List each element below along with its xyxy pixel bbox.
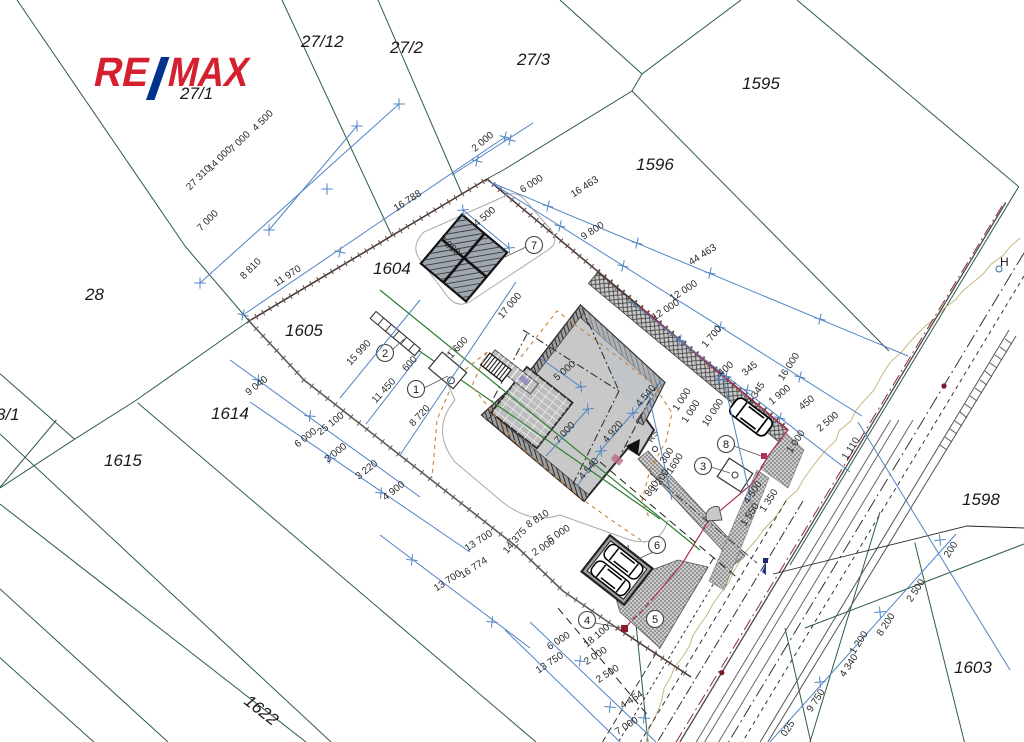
svg-text:8: 8	[723, 439, 729, 451]
svg-text:1603: 1603	[954, 658, 992, 677]
svg-text:8/1: 8/1	[0, 405, 20, 424]
svg-text:1614: 1614	[211, 404, 249, 423]
svg-text:1596: 1596	[636, 155, 674, 174]
svg-text:1598: 1598	[962, 490, 1000, 509]
svg-text:1: 1	[413, 384, 419, 396]
svg-text:4: 4	[584, 615, 590, 627]
svg-text:1605: 1605	[285, 321, 323, 340]
svg-text:6: 6	[654, 540, 660, 552]
svg-text:MAX: MAX	[164, 48, 254, 94]
svg-text:28: 28	[84, 285, 104, 304]
svg-text:1604: 1604	[373, 259, 411, 278]
svg-text:5: 5	[652, 614, 658, 626]
svg-text:RE: RE	[90, 48, 154, 94]
svg-text:1615: 1615	[104, 451, 142, 470]
svg-text:1595: 1595	[742, 74, 780, 93]
svg-text:27/3: 27/3	[516, 50, 551, 69]
svg-text:7: 7	[531, 240, 537, 252]
svg-text:2: 2	[382, 348, 388, 360]
svg-text:3: 3	[700, 461, 706, 473]
svg-text:27/2: 27/2	[389, 38, 424, 57]
svg-text:27/12: 27/12	[300, 32, 344, 51]
